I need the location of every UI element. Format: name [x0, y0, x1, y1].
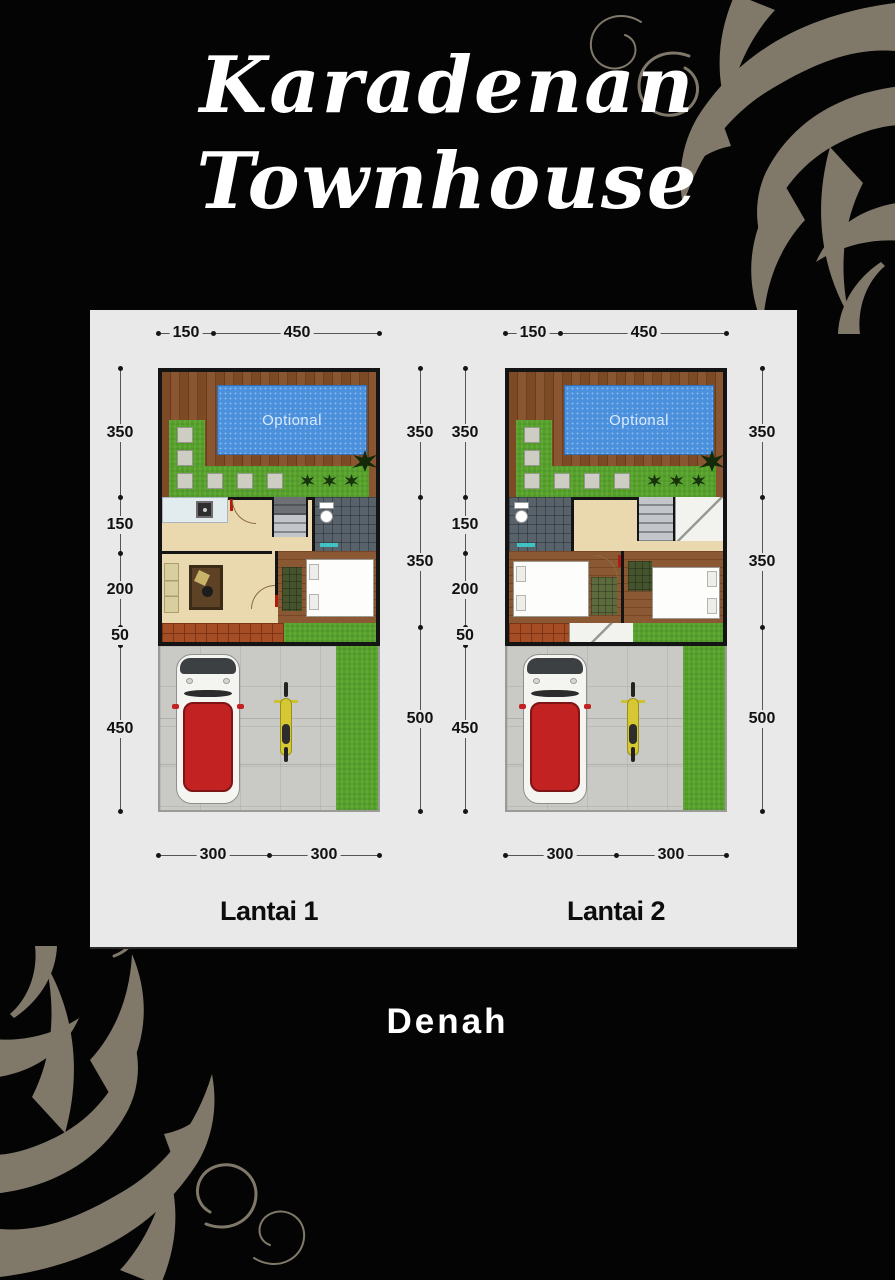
terrace-row — [509, 623, 723, 642]
stepping-stone — [554, 473, 570, 489]
title-line-1: Karadenan — [0, 38, 895, 134]
motorcycle-icon — [276, 682, 296, 762]
dim-dot — [156, 331, 161, 336]
floorplan-lantai-1: Optional — [158, 368, 380, 812]
dim-dot — [118, 551, 123, 556]
dim-dot — [118, 366, 123, 371]
door — [275, 595, 278, 607]
dim-dot — [503, 331, 508, 336]
stepping-stone — [584, 473, 600, 489]
kitchen-counter — [162, 497, 228, 523]
wall — [162, 551, 272, 554]
bedroom-rug — [591, 577, 617, 615]
living-row — [162, 551, 376, 623]
carport — [158, 646, 380, 812]
dim-dot — [724, 853, 729, 858]
wall — [571, 497, 574, 551]
floral-ornament-bottom-left-icon — [0, 946, 412, 1280]
dim-label: 350 — [449, 424, 482, 442]
dim-label: 200 — [104, 581, 137, 599]
dim-label: 150 — [104, 516, 137, 534]
car-icon — [523, 654, 587, 804]
swimming-pool: Optional — [564, 385, 714, 455]
car-icon — [176, 654, 240, 804]
floorplan-lantai-2: Optional — [505, 368, 727, 812]
bath-stairs-row — [509, 497, 723, 551]
dim-dot — [760, 809, 765, 814]
dim-label: 450 — [104, 720, 137, 738]
side-grass — [633, 623, 723, 642]
staircase — [637, 497, 675, 541]
pool-optional-label: Optional — [262, 412, 322, 429]
caption-denah: Denah — [0, 1002, 895, 1042]
dim-dot — [118, 495, 123, 500]
dim-dot — [614, 853, 619, 858]
dim-dot — [418, 495, 423, 500]
dim-label: 450 — [628, 324, 661, 342]
dim-dot — [558, 331, 563, 336]
stepping-stone — [177, 427, 193, 443]
bath-mat — [320, 543, 338, 547]
dim-dot — [463, 495, 468, 500]
dim-dot — [156, 853, 161, 858]
wall — [275, 551, 278, 595]
stepping-stone — [524, 450, 540, 466]
floor-label-lantai-2: Lantai 2 — [567, 896, 665, 927]
wall — [312, 497, 315, 551]
dim-label: 50 — [108, 627, 132, 645]
stepping-stone — [267, 473, 283, 489]
dim-dot — [463, 809, 468, 814]
bedrooms-row — [509, 551, 723, 623]
sofa-icon — [164, 563, 179, 613]
swimming-pool: Optional — [217, 385, 367, 455]
pool-deck-area: Optional — [162, 372, 376, 497]
dim-dot — [377, 331, 382, 336]
side-grass — [284, 623, 376, 642]
dim-label: 450 — [281, 324, 314, 342]
stepping-stone — [614, 473, 630, 489]
house-outline: Optional — [505, 368, 727, 646]
stair-landing — [675, 497, 723, 541]
floorplan-panel: 150 450 350 150 200 50 450 350 350 500 3… — [90, 310, 797, 947]
driveway-grass — [336, 646, 378, 810]
dim-dot — [118, 809, 123, 814]
dim-label: 150 — [517, 324, 550, 342]
bedroom-rug — [282, 567, 302, 611]
entry-step — [569, 623, 634, 642]
pool-optional-label: Optional — [609, 412, 669, 429]
poster-page: Karadenan Townhouse 150 450 350 150 200 … — [0, 0, 895, 1280]
door-swing-arc — [251, 585, 275, 609]
kitchen-stove — [196, 501, 213, 518]
dim-label: 300 — [655, 846, 688, 864]
dim-dot — [418, 809, 423, 814]
stepping-stone — [524, 473, 540, 489]
dim-label: 350 — [404, 424, 437, 442]
title-line-2: Townhouse — [0, 134, 895, 230]
stepping-stone — [237, 473, 253, 489]
dim-dot — [760, 366, 765, 371]
coffee-table-icon — [189, 565, 223, 610]
driveway-grass — [683, 646, 725, 810]
bed-icon — [652, 567, 720, 619]
dim-label: 300 — [544, 846, 577, 864]
bath-mat — [517, 543, 535, 547]
staircase — [272, 497, 308, 537]
toilet-icon — [514, 502, 529, 524]
pool-deck-area: Optional — [509, 372, 723, 497]
terrace-tiles — [162, 623, 284, 642]
floor-label-lantai-1: Lantai 1 — [220, 896, 318, 927]
dim-label: 500 — [746, 710, 779, 728]
stepping-stone — [524, 427, 540, 443]
motorcycle-icon — [623, 682, 643, 762]
dim-label: 300 — [308, 846, 341, 864]
dim-dot — [724, 331, 729, 336]
stepping-stone — [177, 473, 193, 489]
bed-icon — [513, 561, 589, 617]
terrace-tiles — [509, 623, 569, 642]
dim-label: 500 — [404, 710, 437, 728]
toilet-icon — [319, 502, 334, 524]
dim-dot — [463, 551, 468, 556]
dim-dot — [503, 853, 508, 858]
house-outline: Optional — [158, 368, 380, 646]
dim-dot — [760, 625, 765, 630]
dim-dot — [211, 331, 216, 336]
stepping-stone — [207, 473, 223, 489]
dim-label: 200 — [449, 581, 482, 599]
dim-label: 150 — [449, 516, 482, 534]
dim-label: 300 — [197, 846, 230, 864]
dim-dot — [418, 625, 423, 630]
dim-dot — [418, 366, 423, 371]
dim-dot — [267, 853, 272, 858]
carport — [505, 646, 727, 812]
dim-dot — [377, 853, 382, 858]
stepping-stone — [177, 450, 193, 466]
door — [618, 555, 621, 567]
door-swing-arc — [232, 500, 256, 524]
dim-label: 350 — [404, 553, 437, 571]
dim-label: 350 — [104, 424, 137, 442]
dim-label: 150 — [170, 324, 203, 342]
dim-dot — [760, 495, 765, 500]
terrace-row — [162, 623, 376, 642]
dim-label: 350 — [746, 553, 779, 571]
kitchen-row — [162, 497, 376, 551]
dim-dot — [463, 366, 468, 371]
dim-label: 50 — [453, 627, 477, 645]
page-title: Karadenan Townhouse — [0, 38, 895, 230]
bed-icon — [306, 559, 374, 617]
bedroom-rug — [628, 561, 652, 591]
dim-label: 350 — [746, 424, 779, 442]
dim-label: 450 — [449, 720, 482, 738]
